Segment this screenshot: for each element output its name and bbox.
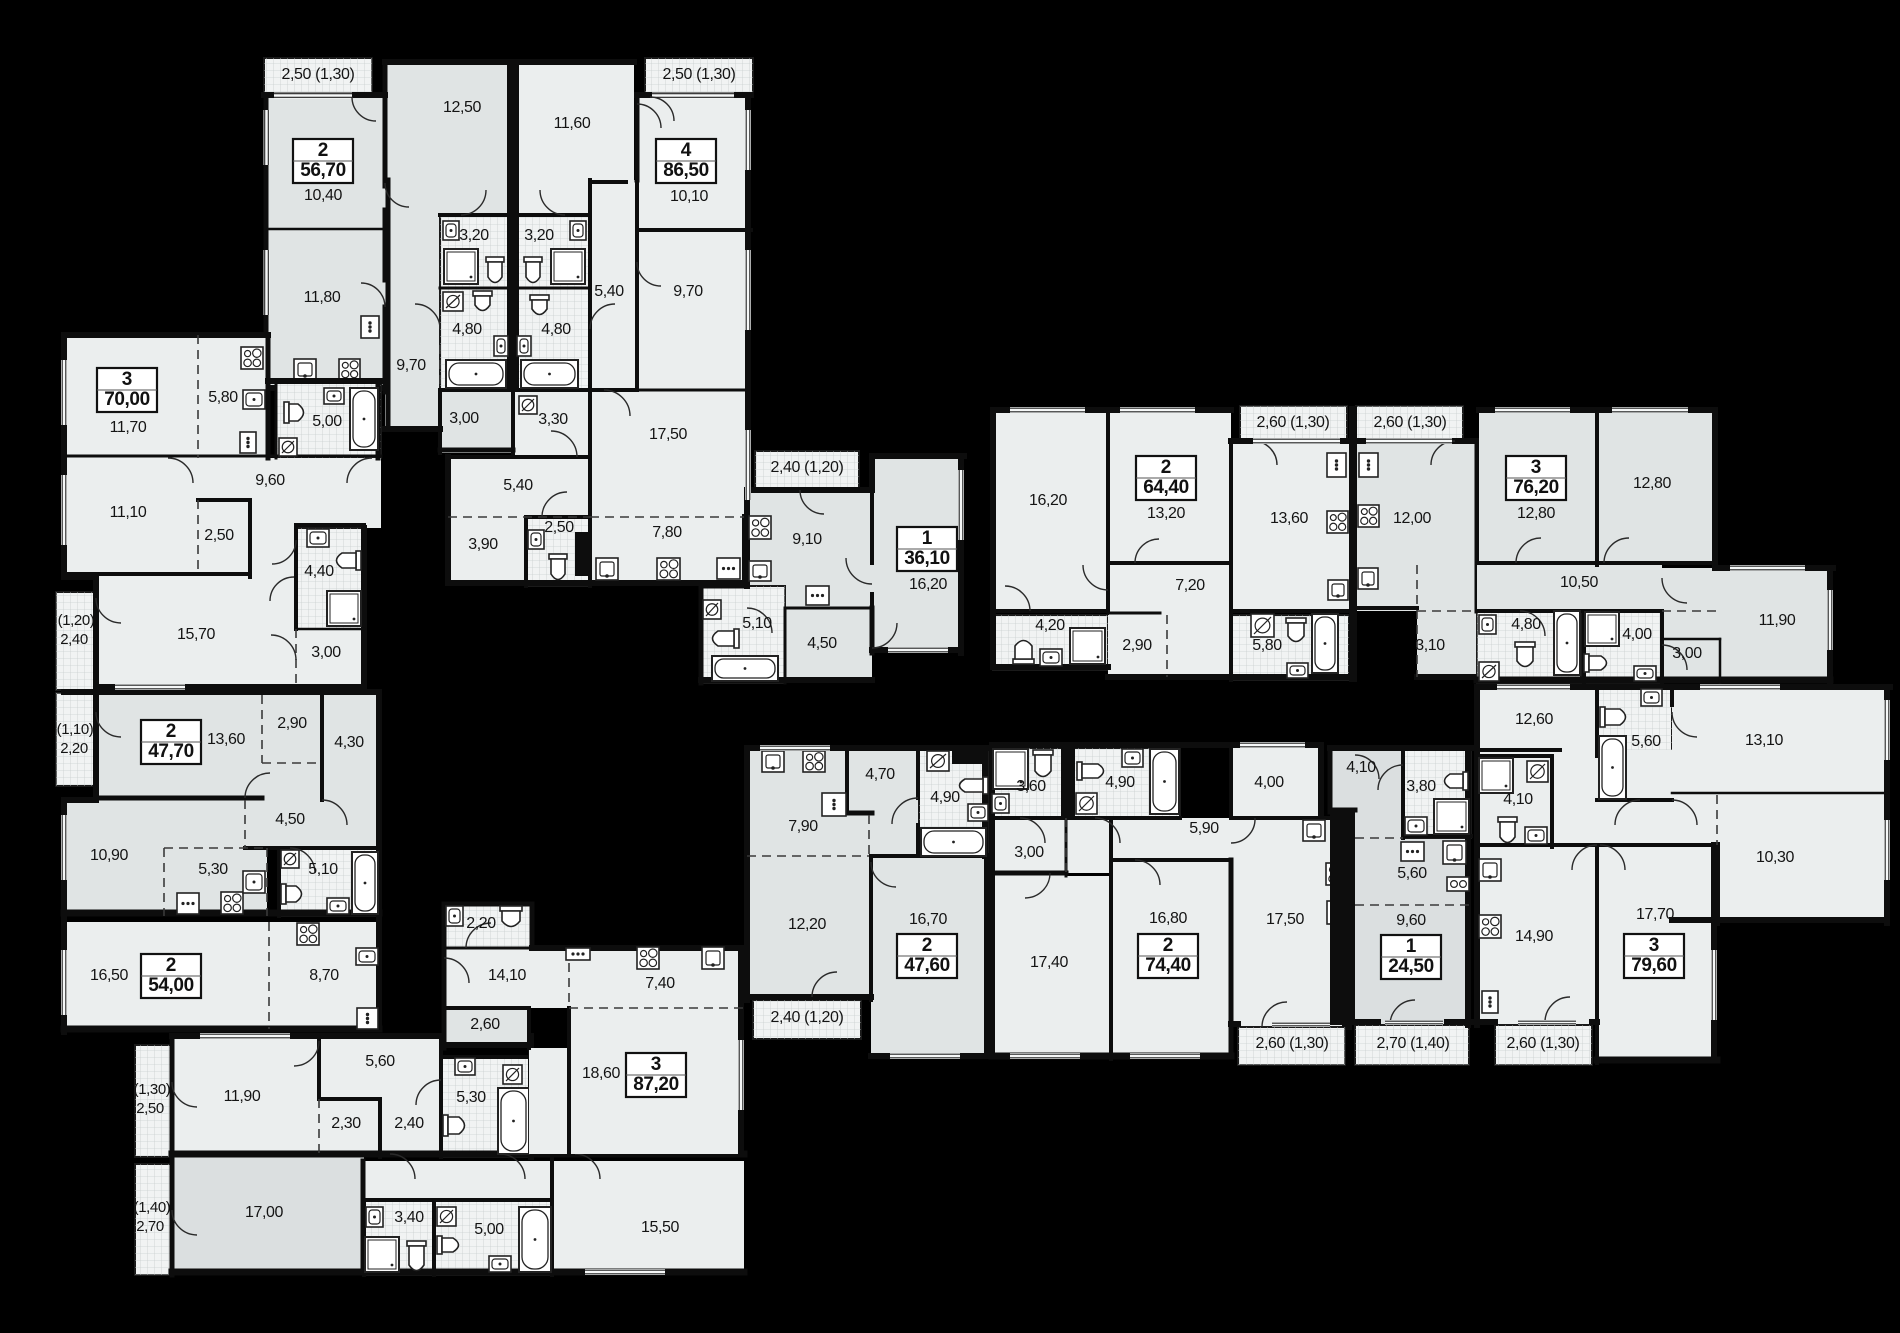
svg-text:64,40: 64,40	[1143, 477, 1189, 498]
svg-text:2,40: 2,40	[394, 1115, 424, 1132]
svg-text:5,80: 5,80	[1252, 637, 1282, 654]
svg-text:11,10: 11,10	[110, 504, 147, 521]
svg-text:4,30: 4,30	[334, 734, 364, 751]
svg-text:7,90: 7,90	[788, 818, 818, 835]
svg-text:70,00: 70,00	[104, 389, 150, 410]
svg-text:2,30: 2,30	[331, 1115, 361, 1132]
svg-text:24,50: 24,50	[1388, 956, 1434, 977]
svg-text:5,90: 5,90	[1189, 820, 1219, 837]
svg-text:11,60: 11,60	[554, 115, 591, 132]
svg-text:15,50: 15,50	[641, 1219, 680, 1236]
svg-text:2,70: 2,70	[136, 1218, 164, 1235]
svg-text:(1,10): (1,10)	[57, 721, 94, 738]
svg-text:2,60 (1,30): 2,60 (1,30)	[1257, 414, 1330, 431]
svg-text:2,60 (1,30): 2,60 (1,30)	[1256, 1035, 1329, 1052]
svg-text:2,60 (1,30): 2,60 (1,30)	[1374, 414, 1447, 431]
svg-text:12,00: 12,00	[1393, 510, 1432, 527]
svg-text:12,80: 12,80	[1633, 475, 1672, 492]
svg-text:12,50: 12,50	[443, 99, 482, 116]
svg-text:4,90: 4,90	[1105, 774, 1135, 791]
svg-text:2,40 (1,20): 2,40 (1,20)	[771, 1009, 844, 1026]
svg-text:5,30: 5,30	[456, 1089, 486, 1106]
svg-text:3,90: 3,90	[468, 536, 498, 553]
svg-text:13,60: 13,60	[1270, 510, 1309, 527]
svg-text:4,50: 4,50	[807, 635, 837, 652]
svg-text:3,10: 3,10	[1415, 637, 1445, 654]
svg-text:7,80: 7,80	[652, 524, 682, 541]
svg-text:2: 2	[318, 140, 329, 161]
svg-text:10,40: 10,40	[304, 187, 343, 204]
svg-text:10,30: 10,30	[1756, 849, 1795, 866]
svg-text:2: 2	[166, 955, 177, 976]
svg-text:3,00: 3,00	[1672, 645, 1702, 662]
svg-text:16,20: 16,20	[909, 576, 948, 593]
svg-text:3: 3	[1531, 457, 1542, 478]
svg-text:9,60: 9,60	[1396, 912, 1426, 929]
svg-text:2,20: 2,20	[466, 915, 496, 932]
svg-text:12,20: 12,20	[788, 916, 827, 933]
svg-text:2,60 (1,30): 2,60 (1,30)	[1507, 1035, 1580, 1052]
svg-text:3,20: 3,20	[524, 227, 554, 244]
svg-text:10,50: 10,50	[1560, 574, 1599, 591]
svg-text:47,60: 47,60	[904, 955, 950, 976]
svg-text:8,70: 8,70	[309, 967, 339, 984]
svg-text:7,20: 7,20	[1175, 577, 1205, 594]
svg-text:86,50: 86,50	[663, 160, 709, 181]
svg-text:11,90: 11,90	[224, 1088, 261, 1105]
svg-text:5,10: 5,10	[742, 615, 772, 632]
svg-text:79,60: 79,60	[1631, 955, 1677, 976]
svg-text:17,50: 17,50	[1266, 911, 1305, 928]
svg-text:13,10: 13,10	[1745, 732, 1784, 749]
svg-text:10,10: 10,10	[670, 188, 709, 205]
svg-text:(1,20): (1,20)	[58, 612, 95, 629]
svg-text:4: 4	[681, 140, 692, 161]
svg-text:9,70: 9,70	[673, 283, 703, 300]
svg-text:17,40: 17,40	[1030, 954, 1069, 971]
svg-text:9,10: 9,10	[792, 531, 822, 548]
svg-text:13,60: 13,60	[207, 731, 246, 748]
svg-text:76,20: 76,20	[1513, 477, 1559, 498]
svg-text:16,70: 16,70	[909, 911, 948, 928]
svg-text:2,70 (1,40): 2,70 (1,40)	[1377, 1035, 1450, 1052]
svg-text:4,70: 4,70	[865, 766, 895, 783]
svg-text:56,70: 56,70	[300, 160, 346, 181]
svg-text:2,40: 2,40	[60, 631, 88, 648]
svg-text:3,00: 3,00	[449, 410, 479, 427]
svg-text:3,30: 3,30	[538, 411, 568, 428]
svg-text:11,90: 11,90	[1759, 612, 1796, 629]
svg-text:9,60: 9,60	[255, 472, 285, 489]
svg-text:4,80: 4,80	[452, 321, 482, 338]
svg-text:5,10: 5,10	[308, 861, 338, 878]
svg-text:5,80: 5,80	[208, 389, 238, 406]
svg-text:5,40: 5,40	[503, 477, 533, 494]
svg-text:2,90: 2,90	[277, 715, 307, 732]
svg-text:3,20: 3,20	[459, 227, 489, 244]
svg-text:2,60: 2,60	[470, 1016, 500, 1033]
svg-text:74,40: 74,40	[1145, 955, 1191, 976]
svg-text:11,80: 11,80	[304, 289, 341, 306]
svg-text:4,80: 4,80	[1511, 616, 1541, 633]
svg-text:36,10: 36,10	[904, 548, 950, 569]
svg-text:18,60: 18,60	[582, 1065, 621, 1082]
svg-text:(1,40): (1,40)	[134, 1199, 171, 1216]
svg-text:4,00: 4,00	[1254, 774, 1284, 791]
svg-text:16,20: 16,20	[1029, 492, 1068, 509]
svg-text:11,70: 11,70	[110, 419, 147, 436]
svg-text:17,70: 17,70	[1636, 906, 1675, 923]
svg-text:(1,30): (1,30)	[134, 1081, 171, 1098]
svg-text:4,40: 4,40	[304, 563, 334, 580]
svg-text:15,70: 15,70	[177, 626, 216, 643]
svg-text:5,00: 5,00	[312, 413, 342, 430]
svg-text:5,60: 5,60	[1631, 733, 1661, 750]
svg-text:12,80: 12,80	[1517, 505, 1556, 522]
svg-text:2: 2	[1163, 935, 1174, 956]
svg-text:16,50: 16,50	[90, 967, 129, 984]
svg-text:2,50 (1,30): 2,50 (1,30)	[663, 66, 736, 83]
svg-text:54,00: 54,00	[148, 975, 194, 996]
svg-text:9,70: 9,70	[396, 357, 426, 374]
svg-text:4,50: 4,50	[275, 811, 305, 828]
svg-text:3,80: 3,80	[1406, 778, 1436, 795]
svg-text:17,50: 17,50	[649, 426, 688, 443]
svg-text:3,40: 3,40	[394, 1209, 424, 1226]
svg-text:87,20: 87,20	[633, 1074, 679, 1095]
svg-text:4,20: 4,20	[1035, 617, 1065, 634]
svg-text:3,00: 3,00	[311, 644, 341, 661]
svg-text:3,00: 3,00	[1014, 844, 1044, 861]
svg-text:5,60: 5,60	[365, 1053, 395, 1070]
svg-text:10,90: 10,90	[90, 847, 129, 864]
svg-text:16,80: 16,80	[1149, 910, 1188, 927]
svg-text:2: 2	[922, 935, 933, 956]
svg-text:2,90: 2,90	[1122, 637, 1152, 654]
svg-text:2,50: 2,50	[544, 519, 574, 536]
svg-text:4,10: 4,10	[1503, 791, 1533, 808]
svg-text:47,70: 47,70	[148, 741, 194, 762]
svg-text:14,90: 14,90	[1515, 928, 1554, 945]
svg-text:5,00: 5,00	[474, 1221, 504, 1238]
svg-text:2: 2	[1161, 457, 1172, 478]
svg-text:5,30: 5,30	[198, 861, 228, 878]
svg-text:17,00: 17,00	[245, 1204, 284, 1221]
svg-text:13,20: 13,20	[1147, 505, 1186, 522]
svg-text:4,90: 4,90	[930, 789, 960, 806]
svg-text:2,50 (1,30): 2,50 (1,30)	[282, 66, 355, 83]
svg-text:7,40: 7,40	[645, 975, 675, 992]
svg-text:4,80: 4,80	[541, 321, 571, 338]
svg-text:4,00: 4,00	[1622, 626, 1652, 643]
svg-text:5,60: 5,60	[1397, 865, 1427, 882]
svg-text:1: 1	[922, 528, 933, 549]
svg-text:2: 2	[166, 721, 177, 742]
svg-text:2,40 (1,20): 2,40 (1,20)	[771, 459, 844, 476]
svg-text:12,60: 12,60	[1515, 711, 1554, 728]
svg-text:1: 1	[1406, 936, 1417, 957]
svg-text:3: 3	[1649, 935, 1660, 956]
svg-text:5,40: 5,40	[594, 283, 624, 300]
svg-text:14,10: 14,10	[488, 967, 527, 984]
svg-text:2,20: 2,20	[60, 740, 88, 757]
svg-text:3: 3	[651, 1054, 662, 1075]
svg-text:2,50: 2,50	[204, 527, 234, 544]
svg-text:3,60: 3,60	[1016, 778, 1046, 795]
svg-text:4,10: 4,10	[1346, 759, 1376, 776]
svg-text:3: 3	[122, 369, 133, 390]
svg-text:2,50: 2,50	[136, 1100, 164, 1117]
